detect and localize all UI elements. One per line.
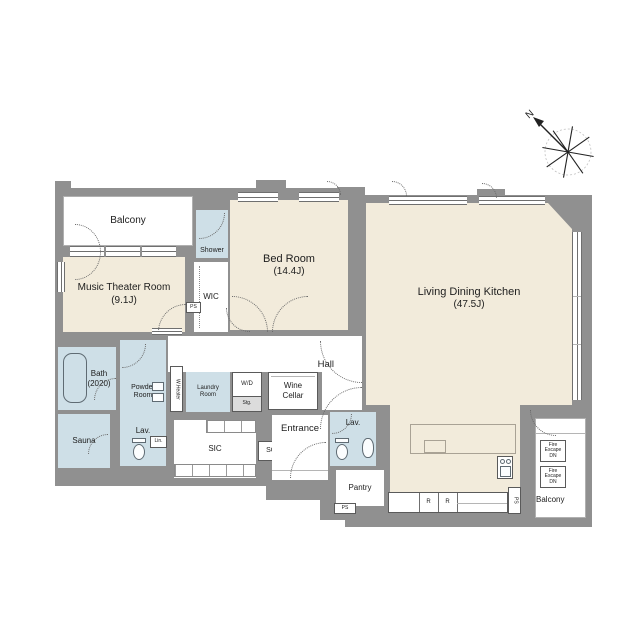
laundry-label: Laundry Room (193, 385, 223, 399)
counter-line (457, 503, 507, 504)
linen-label: Lin. (154, 439, 162, 445)
sink (152, 382, 164, 391)
lav-left-label: Lav. (120, 426, 166, 436)
wd-label: W/D (241, 373, 253, 396)
ldk-size: (47.5J) (453, 299, 484, 312)
wall-pillar (55, 181, 71, 189)
sink-basin (500, 466, 511, 477)
wine-shelf-line (271, 376, 315, 377)
toilet-bowl (133, 444, 145, 460)
pipe-space-kitchen: PS (508, 487, 521, 514)
cooktop-sink (497, 456, 513, 479)
wall-pillar (337, 187, 365, 195)
water-heater-label: W.Heater (174, 379, 180, 400)
floor-plan: Balcony Music Theater Room (9.1J) Shower… (0, 0, 640, 640)
island-sink (424, 440, 446, 453)
window (389, 196, 467, 205)
balcony-top-label: Balcony (110, 215, 146, 228)
music-theater-name: Music Theater Room (78, 282, 171, 295)
toilet-tank (335, 438, 349, 443)
window-arc (392, 181, 407, 196)
sink (362, 438, 374, 458)
room-wic: WIC (194, 262, 228, 332)
fridge-r2: R (438, 493, 457, 512)
window (572, 232, 582, 400)
hanger-rail (199, 266, 200, 328)
toilet-bowl (336, 444, 348, 460)
bathtub (63, 353, 87, 403)
sink (152, 393, 164, 402)
sic-label: SIC (208, 444, 221, 454)
pipe-space-wic: PS (186, 302, 201, 313)
fire-escape-hatch: Fire Escape DN (540, 466, 566, 488)
wd-storage: W/D Stg. (232, 372, 262, 412)
kitchen-ps-label: PS (512, 497, 518, 504)
room-laundry: Laundry Room (186, 372, 230, 412)
fire-escape-line3: DN (549, 480, 556, 486)
window-mullion (573, 344, 581, 345)
wine-cellar-label: Wine Cellar (276, 381, 310, 400)
fire-escape-hatch: Fire Escape DN (540, 440, 566, 462)
window (238, 192, 278, 202)
balcony-bottom-label: Balcony (536, 495, 585, 505)
kitchen-counter: R R (388, 492, 508, 513)
water-heater: W.Heater (170, 366, 183, 412)
wic-ps-label: PS (190, 305, 197, 311)
stg-label: Stg. (233, 396, 261, 411)
bath-name: Bath (91, 369, 107, 379)
toilet-tank (132, 438, 146, 443)
shower-label: Shower (200, 247, 224, 255)
burner (500, 459, 505, 464)
linen-closet: Lin. (150, 436, 167, 448)
room-pantry: Pantry (336, 470, 384, 506)
wall-pillar (256, 180, 286, 189)
pantry-ps-label: PS (342, 506, 349, 512)
window-mullion (573, 296, 581, 297)
fridge-r1: R (419, 493, 438, 512)
pipe-space-pantry: PS (334, 503, 356, 514)
fire-escape-line3: DN (549, 454, 556, 460)
bed-room-size: (14.4J) (273, 266, 304, 279)
room-wine-cellar: Wine Cellar (268, 372, 318, 410)
burner (506, 459, 511, 464)
shoe-shelf (174, 464, 256, 477)
wic-label: WIC (203, 292, 219, 302)
entrance-label: Entrance (281, 423, 319, 434)
bed-room-name: Bed Room (263, 252, 315, 266)
window (142, 246, 176, 257)
window-arc (327, 181, 341, 195)
music-theater-size: (9.1J) (111, 295, 137, 308)
window (106, 246, 140, 257)
ldk-name: Living Dining Kitchen (418, 285, 521, 299)
shoe-shelf (206, 420, 256, 433)
pantry-label: Pantry (348, 483, 371, 493)
compass-rose-icon: N (522, 104, 610, 192)
window (57, 262, 65, 292)
window-arc (482, 183, 497, 198)
